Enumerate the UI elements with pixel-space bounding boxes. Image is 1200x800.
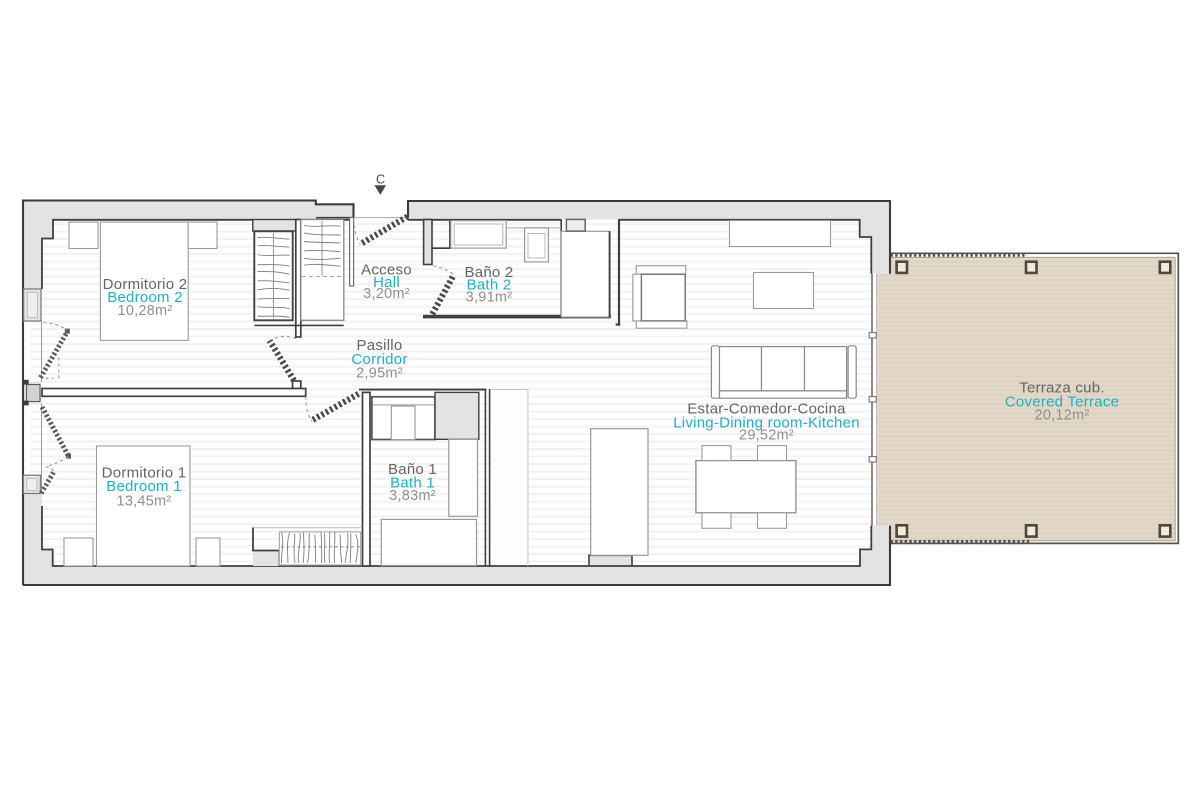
svg-text:13,45m²: 13,45m² [117, 494, 172, 510]
svg-text:2,95m²: 2,95m² [356, 366, 403, 382]
svg-text:3,83m²: 3,83m² [389, 488, 436, 504]
svg-text:3,91m²: 3,91m² [466, 290, 513, 306]
svg-text:20,12m²: 20,12m² [1035, 408, 1090, 424]
svg-text:29,52m²: 29,52m² [739, 428, 794, 444]
svg-text:3,20m²: 3,20m² [363, 286, 410, 302]
svg-text:C: C [376, 172, 385, 186]
svg-text:10,28m²: 10,28m² [118, 303, 173, 319]
svg-text:Bedroom 1: Bedroom 1 [106, 478, 182, 495]
